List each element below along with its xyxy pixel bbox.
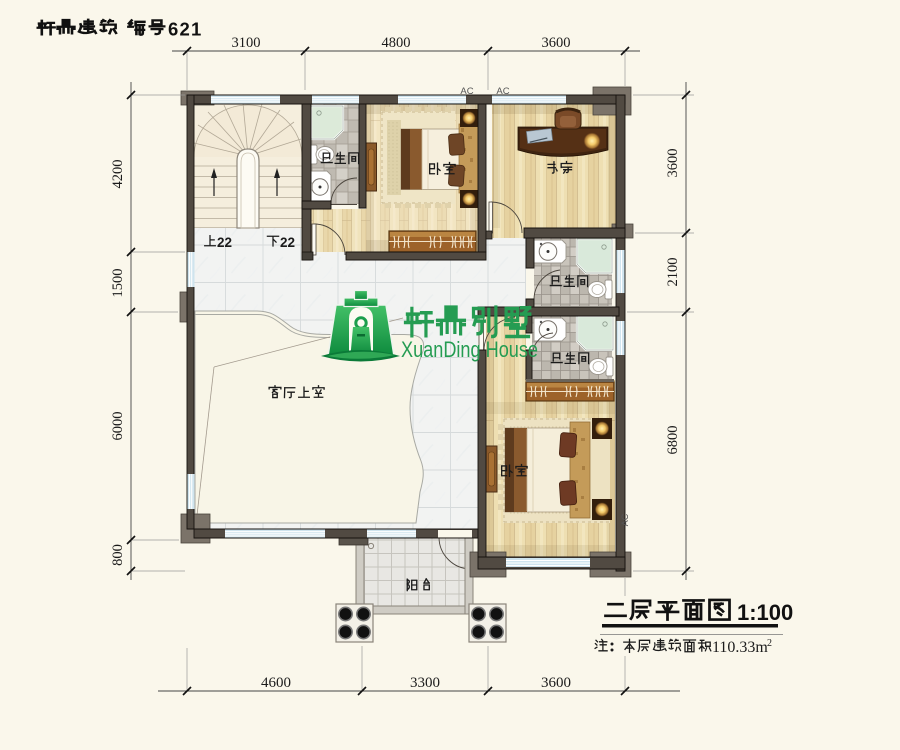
svg-text:6800: 6800 — [665, 426, 681, 455]
svg-text:3600: 3600 — [541, 675, 571, 691]
svg-text:3600: 3600 — [542, 35, 571, 51]
svg-text:3100: 3100 — [232, 35, 261, 51]
svg-text:XuanDing House: XuanDing House — [401, 337, 538, 362]
svg-text:4800: 4800 — [382, 35, 411, 51]
svg-text:3300: 3300 — [410, 675, 440, 691]
svg-text:4600: 4600 — [261, 675, 291, 691]
svg-text:800: 800 — [110, 544, 126, 566]
svg-text:1500: 1500 — [110, 269, 126, 298]
svg-text:6000: 6000 — [110, 412, 126, 441]
svg-text:4200: 4200 — [110, 160, 126, 189]
svg-text:AC: AC — [620, 513, 630, 526]
svg-text:1:100: 1:100 — [737, 600, 793, 625]
svg-text:2100: 2100 — [665, 258, 681, 287]
svg-text:22: 22 — [280, 235, 295, 250]
svg-text:AC: AC — [460, 86, 473, 97]
svg-text:621: 621 — [168, 19, 202, 40]
svg-text:AC: AC — [496, 86, 509, 97]
svg-text:110.33m: 110.33m — [712, 639, 768, 656]
svg-text:22: 22 — [217, 235, 232, 250]
svg-text:3600: 3600 — [665, 149, 681, 178]
svg-text:2: 2 — [767, 638, 772, 649]
